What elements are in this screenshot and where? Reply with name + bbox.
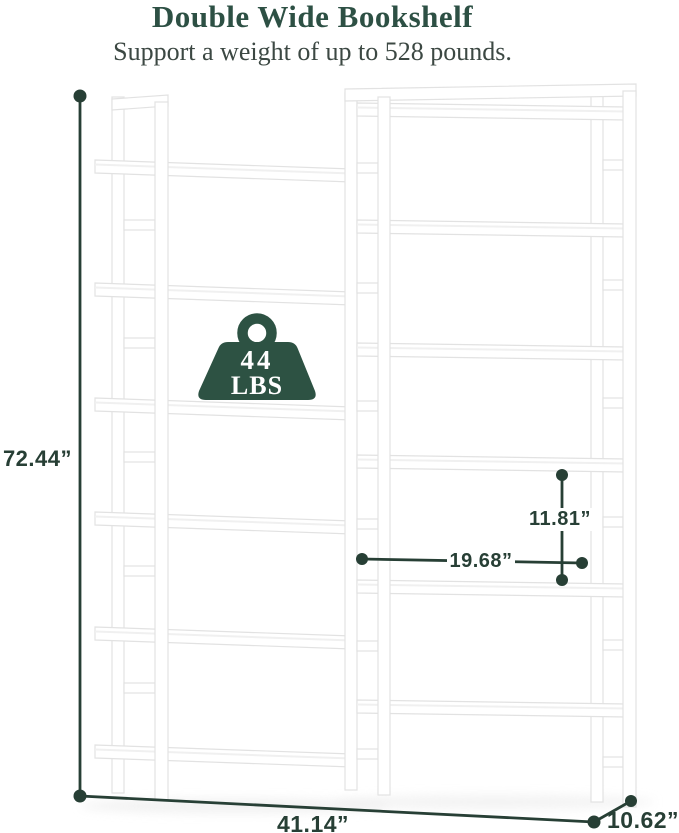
inner-height-dimension-label: 11.81”: [522, 508, 598, 531]
right-tower-front-left-post: [378, 97, 390, 795]
dimension-endpoint-dot: [576, 557, 588, 569]
weight-badge: 44 LBS: [198, 319, 315, 401]
left-tower-back-post: [112, 97, 124, 793]
inner-width-dimension-label: 19.68”: [447, 550, 515, 573]
bookshelf-illustration: 44 LBS: [0, 0, 679, 833]
weight-unit-label: LBS: [231, 371, 283, 400]
dimension-endpoint-dot: [556, 469, 568, 481]
width-dimension-label: 41.14”: [253, 812, 373, 833]
height-dimension-label: 72.44”: [0, 447, 72, 470]
right-tower-front-right-post: [623, 91, 636, 807]
left-tower-front-post: [155, 102, 168, 800]
height-dimension-line: [74, 90, 87, 803]
left-tower-shelves: [95, 160, 352, 767]
dimension-endpoint-dot: [74, 90, 87, 103]
dimension-endpoint-dot: [556, 574, 568, 586]
dimension-endpoint-dot: [356, 553, 368, 565]
product-dimension-image: Double Wide Bookshelf Support a weight o…: [0, 0, 679, 833]
depth-dimension-label: 10.62”: [607, 808, 679, 832]
right-tower-back-left-post: [345, 93, 357, 790]
right-tower-shelves: [357, 103, 626, 717]
dimension-endpoint-dot: [625, 795, 637, 807]
right-tower: [345, 84, 636, 807]
right-tower-back-right-post: [591, 88, 603, 802]
left-tower: [95, 95, 352, 800]
